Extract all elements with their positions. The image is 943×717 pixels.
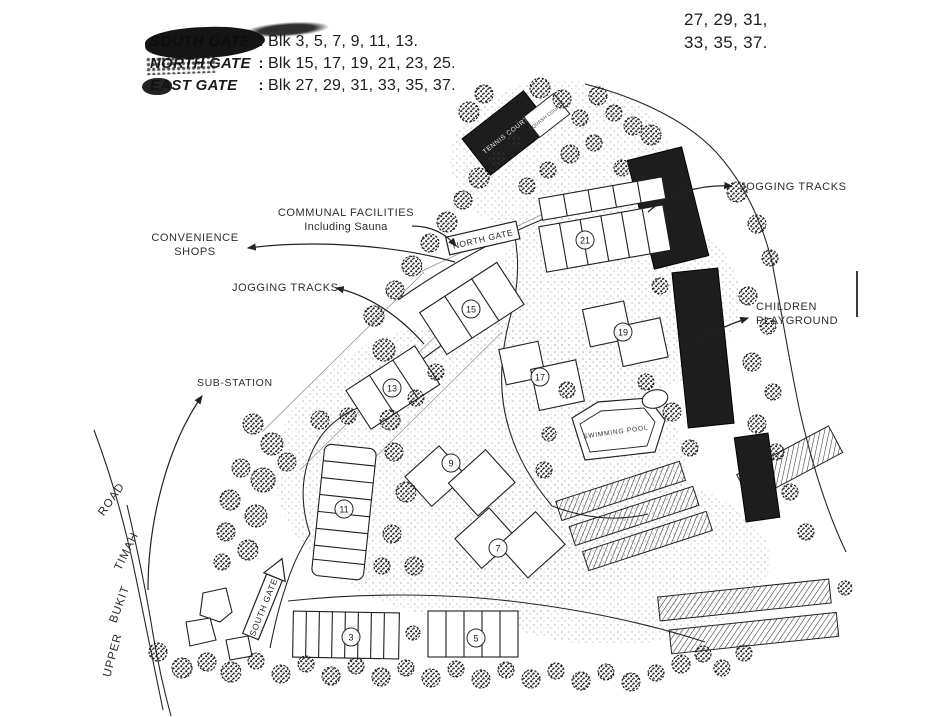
legend-blocks-east: Blk 27, 29, 31, 33, 35, 37. [268,77,456,95]
road-word-bukit: BUKIT [108,584,133,625]
sub-station-label: SUB-STATION [197,376,273,390]
block-marker-5: 5 [467,629,486,648]
jogging-tracks-left-label: JOGGING TRACKS [232,281,339,295]
block-marker-11: 11 [335,500,354,519]
legend-gate-north: NORTH GATE [150,55,254,72]
corner-note-line2: 33, 35, 37. [684,31,768,54]
jogging-tracks-right-label: JOGGING TRACKS [740,180,847,194]
legend-gate-east: EAST GATE [150,77,254,94]
sub-station-arrow [148,396,202,590]
block-marker-13: 13 [383,379,402,398]
block-marker-21: 21 [576,231,595,250]
legend-row-south: SOUTH GATE : Blk 3, 5, 7, 9, 11, 13. [150,33,456,55]
legend-gate-south: SOUTH GATE [150,33,254,50]
block-marker-9: 9 [442,454,461,473]
road-word-upper: UPPER [101,632,124,678]
block-marker-17: 17 [531,368,550,387]
corner-note: 27, 29, 31, 33, 35, 37. [684,8,768,54]
block-marker-15: 15 [462,300,481,319]
gate-legend: SOUTH GATE : Blk 3, 5, 7, 9, 11, 13. NOR… [150,33,456,99]
site-plan-drawing: TENNIS COURTS SQUASH COURTS [0,0,943,717]
legend-row-east: EAST GATE : Blk 27, 29, 31, 33, 35, 37. [150,77,456,99]
legend-row-north: NORTH GATE : Blk 15, 17, 19, 21, 23, 25. [150,55,456,77]
south-gate: SOUTH GATE [240,554,293,640]
block-marker-3: 3 [342,628,361,647]
block-marker-19: 19 [614,323,633,342]
road-name: UPPER BUKIT TIMAH ROAD [96,481,141,678]
corner-note-line1: 27, 29, 31, [684,8,768,31]
convenience-shops-label: CONVENIENCE SHOPS [147,231,243,259]
legend-blocks-south: Blk 3, 5, 7, 9, 11, 13. [268,33,418,51]
legend-blocks-north: Blk 15, 17, 19, 21, 23, 25. [268,55,456,73]
convenience-shop-buildings [186,588,252,660]
road-word-road: ROAD [96,481,127,518]
block-marker-7: 7 [489,539,508,558]
scan-artifact-line [856,271,858,317]
north-gate: NORTH GATE [446,221,520,255]
site-plan-page: TENNIS COURTS SQUASH COURTS [0,0,943,717]
children-playground-label: CHILDREN PLAYGROUND [756,300,838,328]
communal-facilities-label: COMMUNAL FACILITIES Including Sauna [262,206,430,234]
